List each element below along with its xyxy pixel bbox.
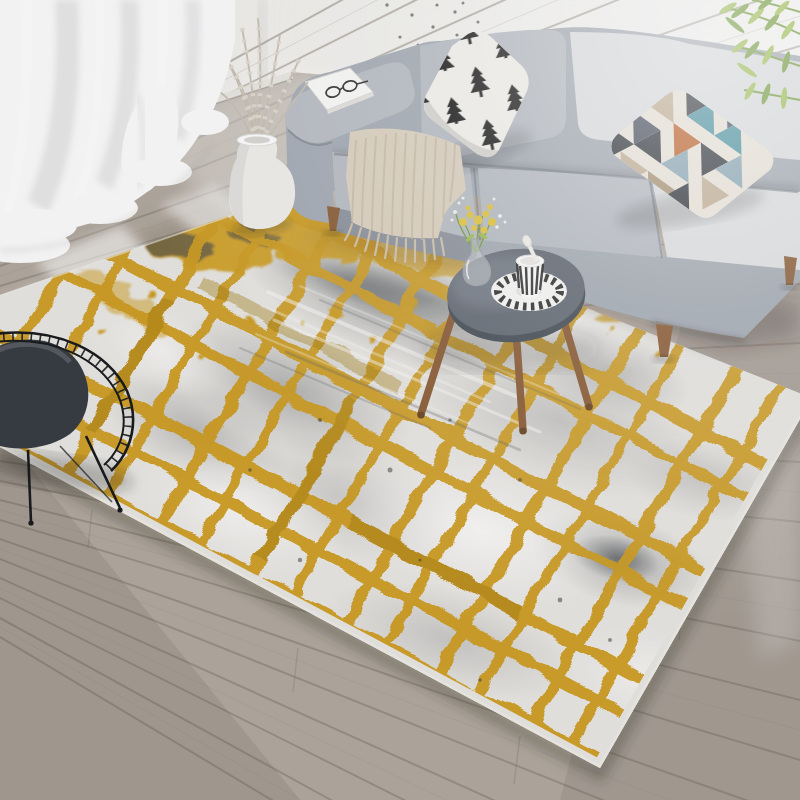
vignette-overlay xyxy=(0,0,800,800)
photo-living-room-rug xyxy=(0,0,800,800)
photo-canvas xyxy=(0,0,800,800)
